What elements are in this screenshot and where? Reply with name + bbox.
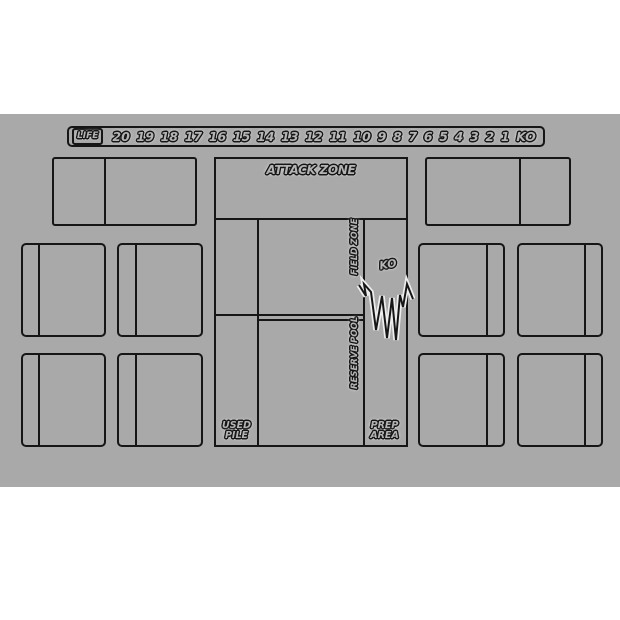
ko-zone-label: KO <box>373 256 403 274</box>
card-slot-left-1[interactable] <box>21 243 106 337</box>
card-slot-divider <box>519 159 521 224</box>
dice-strip-divider <box>38 245 40 335</box>
life-value[interactable]: 8 <box>393 129 402 144</box>
attack-zone-label: ATTACK ZONE <box>216 163 406 177</box>
ko-burst-edge <box>211 154 415 454</box>
life-value[interactable]: 17 <box>185 129 202 144</box>
life-value[interactable]: 9 <box>378 129 387 144</box>
field-reserve-divider <box>216 314 365 316</box>
card-slot-right-4[interactable] <box>517 353 603 447</box>
card-slot-top-right[interactable] <box>425 157 571 226</box>
dice-strip-divider <box>486 245 488 335</box>
playmat-page: LIFE 2019181716151413121110987654321KO <box>0 0 620 620</box>
card-slot-right-2[interactable] <box>517 243 603 337</box>
ko-column-divider <box>363 220 365 445</box>
card-slot-right-3[interactable] <box>418 353 505 447</box>
life-value[interactable]: 7 <box>408 129 417 144</box>
field-reserve-divider-inner <box>257 319 365 321</box>
card-slot-divider <box>104 159 106 224</box>
life-value[interactable]: 15 <box>233 129 250 144</box>
life-track[interactable]: LIFE 2019181716151413121110987654321KO <box>67 126 545 147</box>
life-value[interactable]: 11 <box>329 129 346 144</box>
life-track-label: LIFE <box>72 128 103 145</box>
life-value[interactable]: 16 <box>209 129 226 144</box>
dice-strip-divider <box>584 355 586 445</box>
life-value[interactable]: 18 <box>161 129 178 144</box>
dice-strip-divider <box>584 245 586 335</box>
life-value[interactable]: 19 <box>137 129 154 144</box>
life-value[interactable]: 13 <box>281 129 298 144</box>
attack-zone-divider <box>216 218 406 220</box>
used-pile-label: USED PILE <box>216 421 257 441</box>
used-pile-column-divider <box>257 220 259 445</box>
center-play-area: ATTACK ZONE FIELD ZONE RESERVE POOL KO <box>214 157 408 447</box>
card-slot-left-4[interactable] <box>117 353 203 447</box>
dice-strip-divider <box>38 355 40 445</box>
card-slot-left-2[interactable] <box>117 243 203 337</box>
life-value[interactable]: 4 <box>455 129 464 144</box>
life-track-values[interactable]: 2019181716151413121110987654321KO <box>103 129 543 144</box>
life-value[interactable]: 3 <box>470 129 479 144</box>
life-value[interactable]: 1 <box>501 129 510 144</box>
prep-area-label: PREP AREA <box>363 421 406 441</box>
card-slot-left-3[interactable] <box>21 353 106 447</box>
reserve-pool-label: RESERVE POOL <box>350 319 360 389</box>
dice-strip-divider <box>135 355 137 445</box>
life-value[interactable]: 10 <box>353 129 370 144</box>
life-value[interactable]: 2 <box>485 129 494 144</box>
field-zone-label: FIELD ZONE <box>350 221 360 275</box>
life-value[interactable]: 6 <box>424 129 433 144</box>
life-value[interactable]: 20 <box>112 129 129 144</box>
dice-strip-divider <box>486 355 488 445</box>
card-slot-right-1[interactable] <box>418 243 505 337</box>
life-value[interactable]: 12 <box>305 129 322 144</box>
card-slot-top-left[interactable] <box>52 157 197 226</box>
life-value[interactable]: 14 <box>257 129 274 144</box>
life-value[interactable]: KO <box>516 129 536 144</box>
playmat: LIFE 2019181716151413121110987654321KO <box>0 114 620 487</box>
dice-strip-divider <box>135 245 137 335</box>
life-value[interactable]: 5 <box>439 129 448 144</box>
